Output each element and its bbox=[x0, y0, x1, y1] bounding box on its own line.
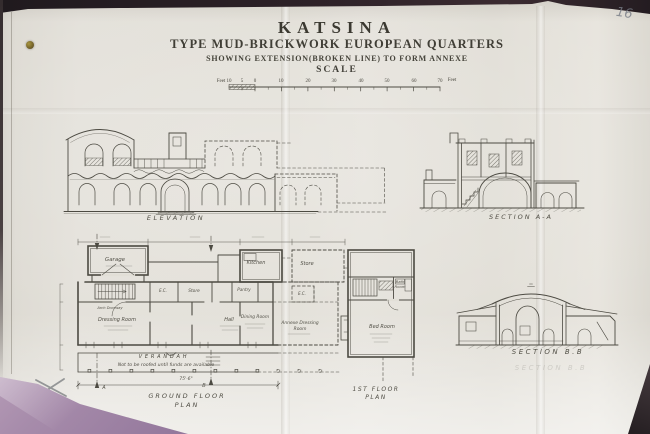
scale-tick: 40 bbox=[359, 79, 364, 84]
plan-note: Not to be roofed until funds are availab… bbox=[118, 364, 215, 369]
section-aa-caption: SECTION A-A bbox=[489, 214, 553, 221]
first-floor-caption-line2: PLAN bbox=[365, 395, 387, 401]
elevation-drawing bbox=[64, 130, 388, 215]
ground-floor-plan-drawing bbox=[36, 234, 349, 396]
room-label-store: Store bbox=[188, 290, 199, 294]
label-verandah: VERANDAH bbox=[139, 355, 190, 360]
ground-floor-caption-line2: PLAN bbox=[175, 402, 200, 409]
room-label-bath-line2: Room bbox=[395, 285, 406, 289]
scale-tick: 10 bbox=[227, 79, 232, 84]
scale-tick: 10 bbox=[279, 79, 284, 84]
section-bb-caption: SECTION B.B bbox=[512, 349, 584, 356]
room-label-ec-1: E.C. bbox=[159, 289, 167, 293]
room-label-annexe-dressing-line1: Annexe Dressing bbox=[281, 322, 318, 326]
first-floor-plan-drawing bbox=[341, 250, 414, 381]
first-floor-caption-line1: 1ST FLOOR bbox=[353, 387, 400, 393]
scale-bar bbox=[229, 85, 440, 92]
room-label-annexe-dressing-line2: Room bbox=[294, 328, 307, 332]
section-marker-a: A bbox=[102, 386, 105, 391]
section-bb-drawing bbox=[456, 284, 618, 349]
scale-unit-left: Feet bbox=[217, 79, 226, 84]
ground-floor-caption-line1: GROUND FLOOR bbox=[148, 393, 225, 400]
room-label-hall: Hall bbox=[224, 318, 234, 323]
elevation-caption: ELEVATION bbox=[147, 215, 205, 222]
room-label-bed-room: Bed Room bbox=[369, 325, 395, 330]
scale-unit-right: Feet bbox=[448, 78, 457, 83]
room-label-garage: Garage bbox=[105, 258, 125, 264]
book-spine-edge bbox=[0, 0, 3, 384]
room-label-kitchen: Kitchen bbox=[247, 261, 266, 266]
room-label-pantry: Pantry bbox=[237, 288, 251, 292]
scale-tick: 5 bbox=[241, 79, 244, 84]
scale-tick: 0 bbox=[254, 79, 257, 84]
sheet-title: KATSINA bbox=[278, 19, 396, 36]
sheet-subtitle: TYPE MUD-BRICKWORK EUROPEAN QUARTERS bbox=[170, 38, 504, 51]
room-label-dressing-room: Dressing Room bbox=[98, 318, 136, 323]
brass-fastener bbox=[26, 41, 34, 49]
section-marker-b: B bbox=[202, 384, 205, 389]
scale-tick: 30 bbox=[332, 79, 337, 84]
section-aa-drawing bbox=[420, 133, 584, 212]
sheet-subnote: SHOWING EXTENSION(BROKEN LINE) TO FORM A… bbox=[206, 55, 468, 63]
scale-tick: 50 bbox=[385, 79, 390, 84]
scale-tick: 70 bbox=[438, 79, 443, 84]
pencil-page-number: 16 bbox=[615, 5, 634, 22]
scale-tick: 60 bbox=[412, 79, 417, 84]
spine-crease-line bbox=[11, 12, 12, 374]
room-label-store-annexe: Store bbox=[300, 262, 313, 267]
overall-dimension: 75'-6" bbox=[179, 378, 192, 382]
label-arch-doorway: Arch Doorway bbox=[97, 307, 122, 311]
section-bb-caption-ghost: SECTION B.B bbox=[515, 365, 587, 372]
scale-tick: 20 bbox=[306, 79, 311, 84]
room-label-dining-room: Dining Room bbox=[241, 316, 269, 320]
scale-heading: SCALE bbox=[316, 66, 358, 76]
room-label-ec-2: E.C. bbox=[298, 292, 306, 296]
photographed-plan-sheet: KATSINA TYPE MUD-BRICKWORK EUROPEAN QUAR… bbox=[0, 0, 650, 434]
